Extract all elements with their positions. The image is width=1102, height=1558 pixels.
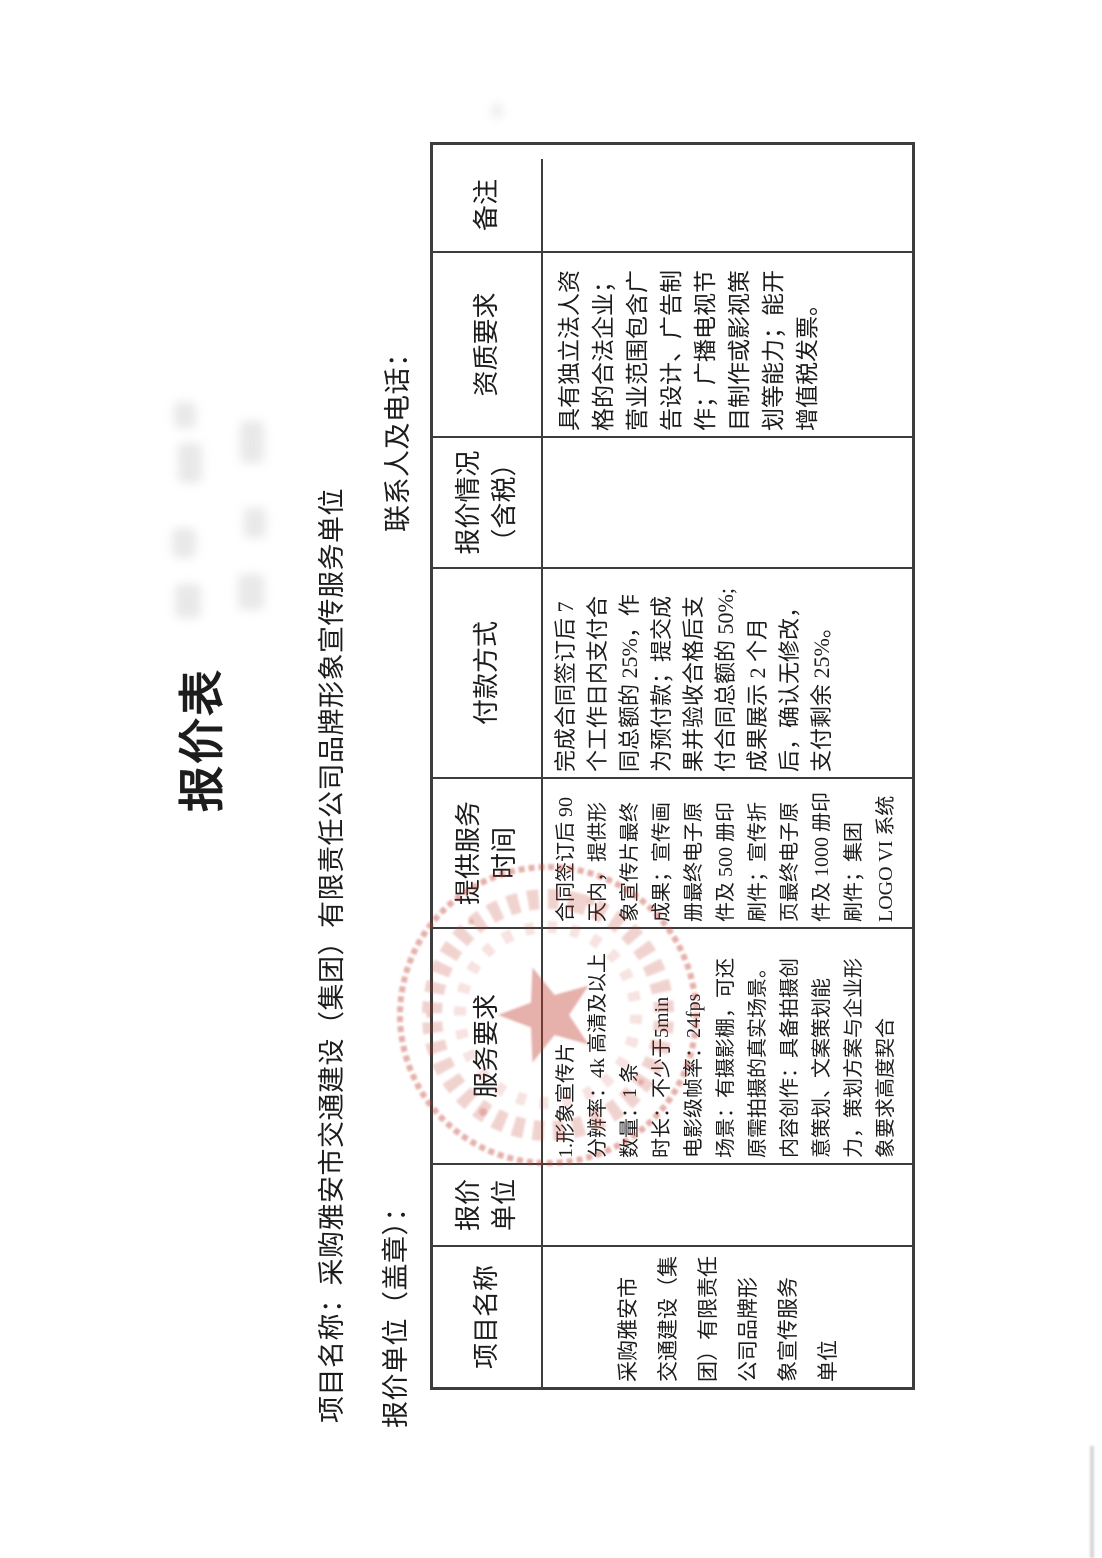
col-remarks: 备注 xyxy=(433,159,912,251)
red-seal-stamp-icon xyxy=(391,858,705,1172)
col-qualifications-header: 资质要求 xyxy=(433,253,543,436)
scan-bleed-artifact xyxy=(172,528,196,558)
scanned-quotation-page: 报价表 项目名称：采购雅安市交通建设（集团）有限责任公司品牌形象宣传服务单位 报… xyxy=(0,0,1102,1558)
col-qualifications: 资质要求 具有独立法人资 格的合法企业； 营业范围包含广 告设计、广告制 作；广… xyxy=(433,251,912,436)
col-payment-terms-header: 付款方式 xyxy=(433,569,543,777)
col-quote-amount-content xyxy=(543,438,912,567)
contact-phone-line: 联系人及电话： xyxy=(376,340,415,533)
quotation-table: 项目名称 采购雅安市 交通建设（集 团）有限责任 公司品牌形 象宣传服务 单位 … xyxy=(430,142,915,1390)
page-title: 报价表 xyxy=(166,615,232,865)
quote-unit-seal-line: 报价单位（盖章）： xyxy=(374,1194,413,1428)
scan-bleed-artifact xyxy=(178,443,202,483)
col-project-name-content: 采购雅安市 交通建设（集 团）有限责任 公司品牌形 象宣传服务 单位 xyxy=(543,1247,912,1387)
col-payment-terms-content: 完成合同签订后 7 个工作日内支付合 同总额的 25%，作 为预付款；提交成 果… xyxy=(543,569,912,777)
col-quote-unit: 报价 单位 xyxy=(433,1163,912,1245)
col-quote-amount-with-tax: 报价情况 （含税） xyxy=(433,436,912,567)
scan-bleed-artifact xyxy=(175,584,201,618)
col-qualifications-content: 具有独立法人资 格的合法企业； 营业范围包含广 告设计、广告制 作；广播电视节 … xyxy=(543,253,912,436)
scan-bleed-artifact xyxy=(240,421,264,463)
col-quote-unit-header: 报价 单位 xyxy=(433,1165,543,1245)
col-project-name-header: 项目名称 xyxy=(433,1247,543,1387)
col-quote-amount-header: 报价情况 （含税） xyxy=(433,438,543,567)
scan-bleed-artifact xyxy=(492,104,502,118)
scan-bleed-artifact xyxy=(244,508,266,538)
col-payment-terms: 付款方式 完成合同签订后 7 个工作日内支付合 同总额的 25%，作 为预付款；… xyxy=(433,567,912,777)
col-quote-unit-content xyxy=(543,1165,912,1245)
project-name-line: 项目名称：采购雅安市交通建设（集团）有限责任公司品牌形象宣传服务单位 xyxy=(310,488,349,1423)
scan-bleed-artifact xyxy=(238,574,264,610)
page-edge-shadow xyxy=(1090,1446,1094,1558)
col-remarks-content xyxy=(543,159,912,251)
col-remarks-header: 备注 xyxy=(433,159,543,251)
col-project-name: 项目名称 采购雅安市 交通建设（集 团）有限责任 公司品牌形 象宣传服务 单位 xyxy=(433,1245,912,1387)
scan-bleed-artifact xyxy=(174,402,196,428)
seal-star-icon xyxy=(498,967,588,1062)
